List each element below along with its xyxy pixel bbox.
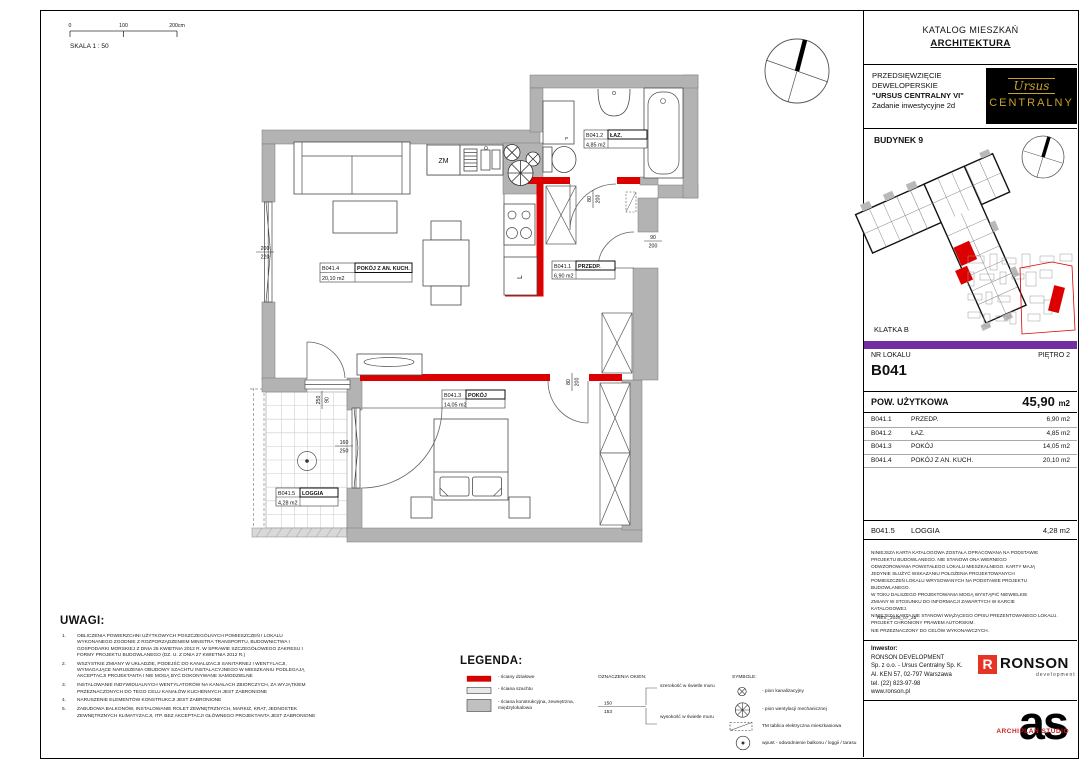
project-line1: PRZEDSIĘWZIĘCIE	[872, 71, 964, 81]
svg-text:90: 90	[650, 235, 656, 241]
svg-text:ŁAZ.: ŁAZ.	[610, 133, 622, 139]
dim-entry-door: 90 200	[644, 235, 662, 250]
catalog-title: KATALOG MIESZKAŃ	[864, 25, 1077, 35]
svg-text:200: 200	[575, 378, 581, 387]
svg-text:ZM: ZM	[438, 158, 448, 165]
note-number: 2.	[62, 662, 77, 681]
investor-details: RONSON DEVELOPMENT Sp. z o.o. - Ursus Ce…	[871, 655, 963, 696]
svg-text:200: 200	[596, 195, 602, 204]
symbol-label-drain: wpust - odwodnienie balkonu / loggii / t…	[762, 741, 856, 747]
revision-label: REV._2025_07_25	[877, 614, 1077, 621]
list-item: 5. ZABUDOWA BALKONÓW, INSTALOWANIE ROLET…	[62, 707, 318, 720]
svg-text:4,28 m2: 4,28 m2	[278, 500, 297, 506]
loggia-door-threshold	[305, 380, 350, 389]
room-label-b041-1: B041.1 PRZEDP. 6,90 m2	[552, 261, 615, 279]
svg-text:250: 250	[316, 396, 322, 405]
svg-text:POKÓJ: POKÓJ	[468, 391, 487, 399]
svg-text:P: P	[565, 136, 568, 141]
table-row: B041.3 POKÓJ 14,05 m2	[864, 440, 1077, 455]
room-name: LOGGIA	[911, 526, 940, 535]
legend-label-structural: - ściana konstrukcyjna, zewnętrzna, międ…	[498, 700, 574, 712]
bathtub	[644, 88, 683, 178]
notes-title: UWAGI:	[60, 615, 105, 627]
note-number: 3.	[62, 683, 77, 696]
project-task: Zadanie inwestycyjne 2d	[872, 101, 964, 111]
symbol-label-electrical: TM tablica elektryczna mieszkaniowa	[762, 724, 841, 730]
svg-text:POKÓJ Z AN. KUCH.: POKÓJ Z AN. KUCH.	[357, 264, 410, 272]
note-text: WSZYSTKIE ZMIANY W UKŁADZIE, PODEJŚĆ DO …	[77, 662, 318, 681]
area-value: 45,90 m2	[1022, 394, 1070, 409]
svg-text:B041.4: B041.4	[322, 266, 339, 272]
svg-text:B041.5: B041.5	[278, 491, 295, 497]
room-name: POKÓJ Z AN. KUCH.	[911, 457, 973, 464]
archiplan-studio-label: ARCHIPLAN STUDIO	[996, 728, 1069, 735]
svg-text:20,10 m2: 20,10 m2	[322, 276, 344, 282]
list-item: 1. OBLICZENIA POWIERZCHNI UŻYTKOWYCH POS…	[62, 634, 318, 659]
svg-text:6,90 m2: 6,90 m2	[554, 273, 573, 279]
ronson-wordmark: RONSON	[1000, 655, 1069, 672]
room-label-b041-5: B041.5 LOGGIA 4,28 m2	[276, 488, 338, 506]
room-label-b041-2: B041.2 ŁAZ. 4,85 m2	[584, 130, 647, 148]
electrical-box-icon	[626, 192, 636, 212]
floor-plan: P ZM	[250, 75, 698, 542]
room-area: 14,05 m2	[1043, 443, 1070, 450]
svg-text:100: 100	[119, 23, 128, 29]
room-code: B041.5	[871, 526, 895, 535]
svg-text:160: 160	[340, 440, 349, 446]
note-number: 4.	[62, 698, 77, 704]
catalog-subtitle: ARCHITEKTURA	[864, 38, 1077, 49]
archiplan-logo: as ARCHIPLAN STUDIO	[864, 701, 1077, 757]
sidebar-header: KATALOG MIESZKAŃ ARCHITEKTURA	[864, 10, 1077, 65]
nightstand-right	[509, 497, 530, 518]
svg-text:0: 0	[69, 23, 72, 29]
ronson-logo: R RONSON development	[978, 655, 1069, 674]
wardrobes	[546, 186, 632, 525]
svg-text:150: 150	[604, 701, 612, 707]
tv-cabinet	[357, 354, 422, 375]
list-item: 2. WSZYSTKIE ZMIANY W UKŁADZIE, PODEJŚĆ …	[62, 662, 318, 681]
legend-swatch-shaft	[467, 688, 491, 694]
loggia-door	[307, 342, 345, 378]
symbol-vent-icon	[735, 703, 749, 717]
investor-text: Inwestor: RONSON DEVELOPMENT Sp. z o.o. …	[871, 645, 963, 697]
svg-text:250: 250	[340, 449, 349, 455]
symbol-drain-icon	[736, 736, 750, 750]
bed	[434, 419, 508, 500]
room-label-b041-4: B041.4 POKÓJ Z AN. KUCH. 20,10 m2	[320, 263, 412, 282]
note-number: 1.	[62, 634, 77, 659]
room-code: B041.2	[871, 430, 892, 437]
legend-label-partition: - ściany działowe	[498, 675, 535, 681]
dim-bedroom-door: 80 200	[566, 373, 581, 391]
area-value-unit: m2	[1058, 399, 1070, 408]
area-label: POW. UŻYTKOWA	[871, 397, 949, 407]
project-name: "URSUS CENTRALNY VI"	[872, 91, 964, 101]
fridge: L	[504, 257, 537, 295]
svg-text:200: 200	[261, 246, 270, 252]
legend-title: LEGENDA:	[460, 655, 522, 667]
unit-number: B041	[871, 362, 907, 379]
loggia-railing	[250, 388, 266, 532]
table-row: B041.1 PRZEDP. 6,90 m2	[864, 413, 1077, 428]
building-name: BUDYNEK 9	[874, 135, 923, 145]
notes-list: 1. OBLICZENIA POWIERZCHNI UŻYTKOWYCH POS…	[62, 634, 318, 722]
note-text: ZABUDOWA BALKONÓW, INSTALOWANIE ROLET ZE…	[77, 707, 318, 720]
list-item: 4. NARUSZENIE ELEMENTÓW KONSTRUKCJI JEST…	[62, 698, 318, 704]
north-compass-icon	[765, 39, 829, 103]
room-code: B041.4	[871, 457, 892, 464]
drain-dot-icon	[305, 459, 309, 463]
scale-bar: 0 100 200cm SKALA 1 : 50	[69, 23, 185, 50]
svg-text:90: 90	[325, 397, 331, 403]
svg-text:200cm: 200cm	[169, 23, 185, 29]
area-value-number: 45,90	[1022, 394, 1055, 409]
room-area: 4,28 m2	[1043, 526, 1070, 535]
ursus-logo-script: Ursus	[1008, 78, 1056, 94]
washing-machine: P	[543, 101, 574, 144]
symbol-label-sewage: - pion kanalizacyjny	[762, 689, 804, 695]
unit-section: NR LOKALU PIĘTRO 2 B041	[864, 349, 1077, 392]
note-text: INSTALOWANIE INDYWIDUALNYCH WENTYLATORÓW…	[77, 683, 318, 696]
ronson-r-icon: R	[978, 655, 997, 674]
legend-swatch-partition	[467, 676, 491, 682]
svg-text:LOGGIA: LOGGIA	[302, 491, 323, 497]
sofa	[294, 142, 410, 194]
symbol-label-vent: - pion wentylacji mechanicznej	[762, 707, 827, 713]
symbols-title: SYMBOLE:	[732, 675, 757, 681]
ronson-subtitle: development	[1036, 672, 1076, 678]
project-text: PRZEDSIĘWZIĘCIE DEWELOPERSKIE "URSUS CEN…	[872, 71, 964, 110]
svg-text:4,85 m2: 4,85 m2	[586, 142, 605, 148]
legend-swatch-structural	[467, 700, 491, 712]
svg-text:B041.1: B041.1	[554, 264, 571, 270]
accent-bar	[864, 341, 1077, 349]
archiplan-letters: as	[1019, 695, 1067, 750]
investor-heading: Inwestor:	[871, 646, 898, 652]
loggia-slab-edge	[252, 528, 347, 537]
project-line2: DEWELOPERSKIE	[872, 81, 964, 91]
ursus-logo-caps: CENTRALNY	[986, 97, 1077, 109]
ursus-centralny-logo: Ursus CENTRALNY	[986, 68, 1077, 124]
svg-text:80: 80	[566, 379, 572, 385]
room-name: ŁAZ.	[911, 430, 925, 437]
svg-text:B041.3: B041.3	[444, 393, 461, 399]
window-markings-title: OZNACZENIA OKIEN:	[598, 675, 646, 681]
legend-label-shaft: - ściana szachtu	[498, 687, 533, 693]
room-code: B041.3	[871, 443, 892, 450]
svg-text:200: 200	[649, 244, 658, 250]
svg-text:14,05 m2: 14,05 m2	[444, 402, 466, 408]
toilet	[543, 147, 576, 173]
symbol-electrical-icon	[730, 723, 752, 731]
room-name: POKÓJ	[911, 443, 933, 450]
coffee-table	[333, 201, 397, 233]
loggia-table-row: B041.5 LOGGIA 4,28 m2	[864, 520, 1077, 540]
room-area: 6,90 m2	[1047, 416, 1071, 423]
svg-text:80: 80	[587, 196, 593, 202]
investor-section: Inwestor: RONSON DEVELOPMENT Sp. z o.o. …	[864, 640, 1077, 701]
table-row: B041.2 ŁAZ. 4,85 m2	[864, 427, 1077, 442]
window-width-label: szerokość w świetle muru	[660, 684, 715, 690]
list-item: 3. INSTALOWANIE INDYWIDUALNYCH WENTYLATO…	[62, 683, 318, 696]
svg-text:B041.2: B041.2	[586, 133, 603, 139]
note-number: 5.	[62, 707, 77, 720]
nightstand-left	[411, 497, 432, 518]
staircase-label: KLATKA B	[874, 325, 909, 334]
dining-set	[423, 221, 469, 305]
note-text: NARUSZENIE ELEMENTÓW KONSTRUKCJI JEST ZA…	[77, 698, 318, 704]
window-height-label: wysokość w świetle muru	[660, 715, 714, 721]
bedroom-balcony-door-swing	[362, 408, 442, 488]
area-section: POW. UŻYTKOWA 45,90 m2	[864, 392, 1077, 413]
symbol-sewage-icon	[738, 687, 746, 695]
unit-nr-label: NR LOKALU	[871, 352, 911, 359]
svg-text:PRZEDP.: PRZEDP.	[578, 264, 601, 270]
bedroom-balcony-door	[352, 408, 360, 488]
bathroom-sink	[598, 89, 630, 116]
project-section: PRZEDSIĘWZIĘCIE DEWELOPERSKIE "URSUS CEN…	[864, 65, 1077, 129]
svg-text:220: 220	[261, 255, 270, 261]
building-section: BUDYNEK 9 KLATKA B	[864, 129, 1077, 341]
room-area: 4,85 m2	[1047, 430, 1071, 437]
loggia-floor	[250, 388, 347, 537]
svg-text:SKALA 1 : 50: SKALA 1 : 50	[70, 43, 109, 50]
svg-text:L: L	[517, 275, 524, 279]
bedroom-door	[548, 381, 588, 423]
room-name: PRZEDP.	[911, 416, 938, 423]
stove	[504, 204, 535, 245]
window-marking-diagram: 150 153	[598, 688, 657, 724]
unit-floor: PIĘTRO 2	[1038, 352, 1070, 359]
catalog-page: 0 100 200cm SKALA 1 : 50	[0, 0, 1087, 768]
room-label-b041-3: B041.3 POKÓJ 14,05 m2	[442, 390, 505, 408]
note-text: OBLICZENIA POWIERZCHNI UŻYTKOWYCH POSZCZ…	[77, 634, 318, 659]
room-area: 20,10 m2	[1043, 457, 1070, 464]
room-code: B041.1	[871, 416, 892, 423]
table-row: B041.4 POKÓJ Z AN. KUCH. 20,10 m2	[864, 454, 1077, 469]
svg-text:153: 153	[604, 709, 612, 715]
